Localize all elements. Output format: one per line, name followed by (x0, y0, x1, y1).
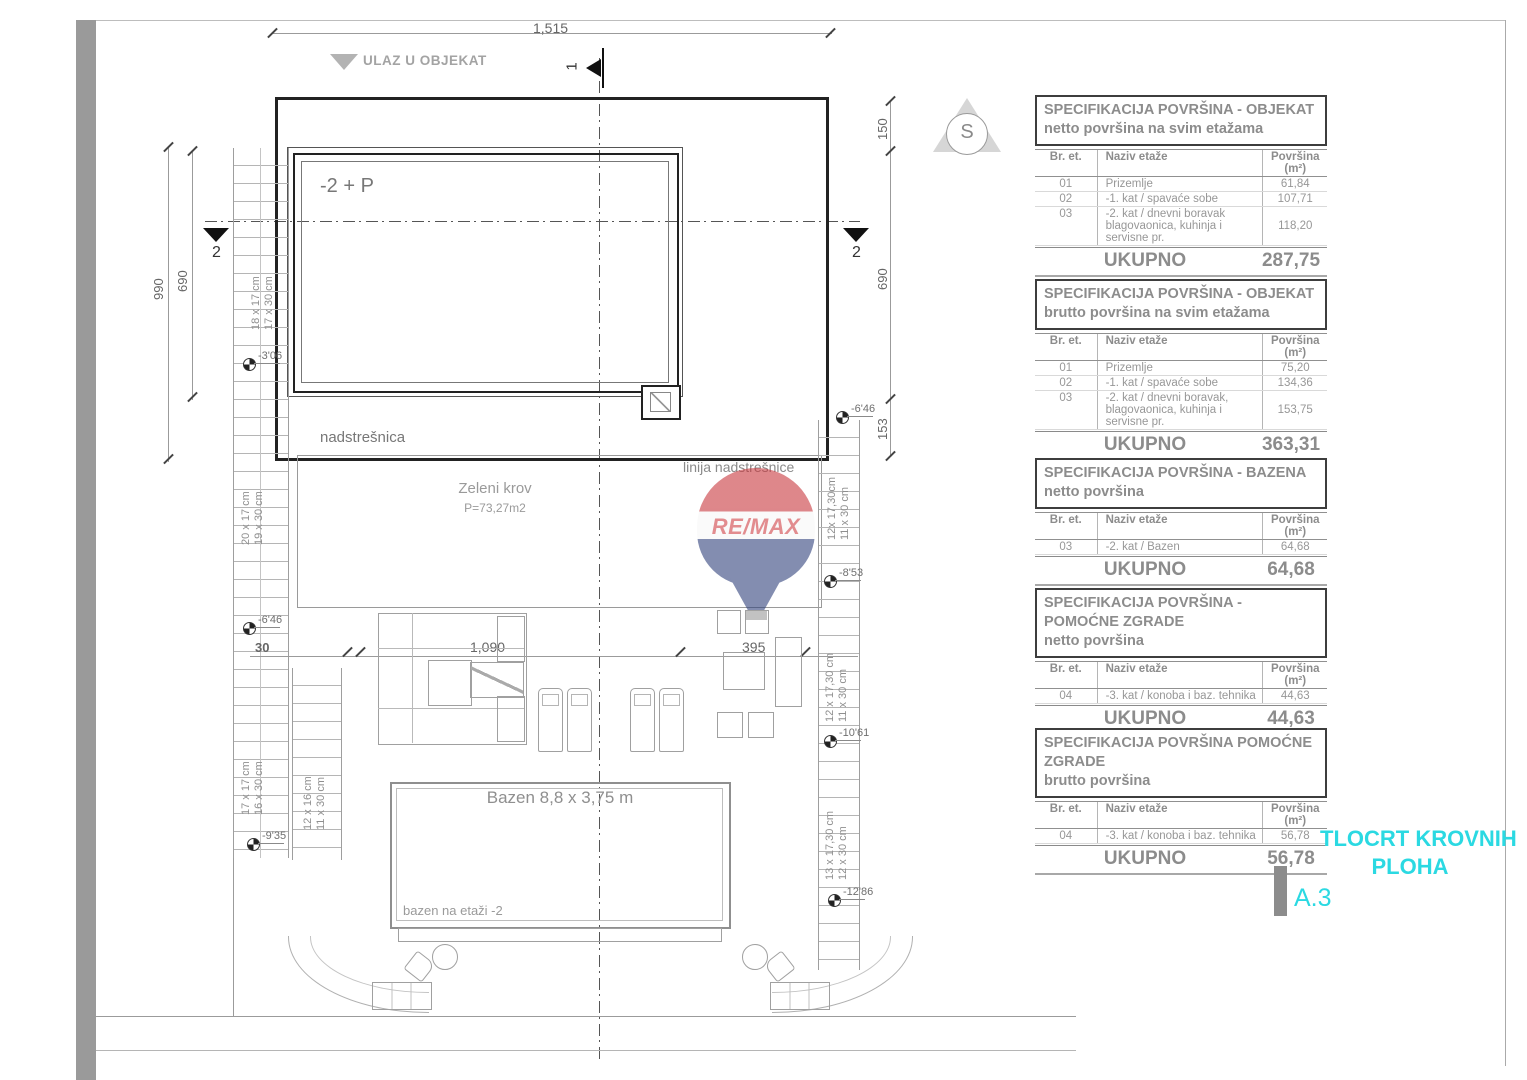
sheet-number: A.3 (1294, 884, 1332, 913)
cell-name-line2: blagovaonica, kuhinja i servisne pr. (1106, 220, 1263, 244)
balloon-tail (697, 578, 815, 610)
cell-name: -3. kat / konoba i baz. tehnika (1098, 829, 1264, 843)
table-title-box: SPECIFIKACIJA POVRŠINA - OBJEKAT brutto … (1035, 279, 1327, 330)
col-num: Br. et. (1035, 513, 1098, 539)
armchair (748, 712, 774, 738)
green-roof-area: P=73,27m2 (430, 501, 560, 515)
armchair (717, 712, 743, 738)
entrance-arrow-icon (330, 54, 358, 70)
site-line-1 (96, 1016, 1076, 1017)
dim-690-right: 690 (876, 268, 889, 290)
cell-name: -1. kat / spavaće sobe (1098, 376, 1264, 390)
stair-label-line: 17 x 30 cm (263, 276, 276, 330)
cell-area: 118,20 (1263, 207, 1327, 245)
elevation-r3: -10'61 (839, 727, 869, 739)
table-row: 04 -3. kat / konoba i baz. tehnika 56,78 (1035, 829, 1327, 844)
cell-area: 134,36 (1263, 376, 1327, 390)
remax-balloon-logo: RE/MAX (697, 468, 815, 620)
cell-num: 03 (1035, 391, 1098, 429)
green-roof-label: Zeleni krov (430, 480, 560, 497)
table-title: SPECIFIKACIJA POVRŠINA POMOĆNE ZGRADE (1044, 734, 1318, 772)
canopy-label: nadstrešnica (320, 429, 405, 446)
sheet-title-line1: TLOCRT KROVNIH (1320, 826, 1500, 852)
armchair (745, 610, 769, 634)
elevation-marker-icon (247, 838, 260, 851)
table-row: 01 Prizemlje 61,84 (1035, 177, 1327, 192)
total-label: UKUPNO (1035, 848, 1255, 870)
total-value: 56,78 (1255, 848, 1327, 870)
table-title: SPECIFIKACIJA POVRŠINA - OBJEKAT (1044, 285, 1318, 304)
dim-line-990 (168, 148, 169, 462)
spec-table-objekat-netto: SPECIFIKACIJA POVRŠINA - OBJEKAT netto p… (1035, 95, 1327, 277)
section-2-left-arrow-icon (203, 228, 229, 242)
building-label: -2 + P (320, 175, 374, 198)
section-2-right-arrow-icon (843, 228, 869, 242)
dim-990: 990 (152, 278, 165, 300)
table-header: Br. et. Naziv etaže Površina (m²) (1035, 801, 1327, 829)
cell-area: 107,71 (1263, 192, 1327, 206)
col-area: Površina (m²) (1263, 150, 1327, 176)
col-num: Br. et. (1035, 802, 1098, 828)
cell-area: 44,63 (1263, 689, 1327, 703)
table-title: SPECIFIKACIJA POVRŠINA - OBJEKAT (1044, 101, 1318, 120)
sheet-border-top (96, 20, 1506, 21)
stair-label-line: 11 x 30 cm (837, 653, 850, 722)
sun-lounger (659, 688, 684, 752)
col-num: Br. et. (1035, 150, 1098, 176)
elevation-marker-icon (243, 358, 256, 371)
lounger-headrest (634, 694, 651, 706)
cell-area: 75,20 (1263, 361, 1327, 375)
table-row: 02 -1. kat / spavaće sobe 134,36 (1035, 376, 1327, 391)
table-title-box: SPECIFIKACIJA POVRŠINA POMOĆNE ZGRADE br… (1035, 728, 1327, 798)
elevation-marker-icon (828, 894, 841, 907)
total-value: 287,75 (1255, 250, 1327, 272)
stair-label-2: 20 x 17 cm 19 x 30 cm (240, 491, 266, 545)
table-title-box: SPECIFIKACIJA POVRŠINA - POMOĆNE ZGRADE … (1035, 588, 1327, 658)
cell-name: Prizemlje (1098, 177, 1264, 191)
terrace-planter (497, 696, 525, 742)
stair-label-line: 18 x 17 cm (250, 276, 263, 330)
pool-deck-strip (398, 928, 722, 942)
stair-label-6: 12 x 17,30 cm 11 x 30 cm (824, 653, 850, 722)
col-area: Površina (m²) (1263, 802, 1327, 828)
cell-area: 61,84 (1263, 177, 1327, 191)
cell-num: 01 (1035, 361, 1098, 375)
total-label: UKUPNO (1035, 708, 1255, 730)
spec-table-pomocne-brutto: SPECIFIKACIJA POVRŠINA POMOĆNE ZGRADE br… (1035, 728, 1327, 875)
table-row: 01 Prizemlje 75,20 (1035, 361, 1327, 376)
stair-label-line: 12 x 30 cm (837, 811, 850, 880)
elevation-tail (254, 627, 280, 628)
cell-name: -2. kat / dnevni boravak blagovaonica, k… (1098, 207, 1264, 245)
section-1-arrow-icon (586, 59, 601, 77)
stair-label-line: 17 x 17 cm (240, 761, 253, 815)
table-subtitle: brutto površina (1044, 772, 1318, 791)
table-subtitle: netto površina (1044, 483, 1318, 502)
patio-table-round (742, 944, 768, 970)
page-edge-bar (76, 20, 96, 1080)
total-label: UKUPNO (1035, 559, 1255, 581)
table-subtitle: netto površina (1044, 632, 1318, 651)
elevation-tail (835, 580, 861, 581)
site-line-2 (96, 1050, 1076, 1051)
table-row: 04 -3. kat / konoba i baz. tehnika 44,63 (1035, 689, 1327, 704)
remax-wordmark: RE/MAX (705, 514, 807, 540)
elevation-tail (839, 899, 865, 900)
stair-arrow-box (470, 662, 524, 698)
cell-num: 03 (1035, 540, 1098, 554)
cell-num: 03 (1035, 207, 1098, 245)
col-name: Naziv etaže (1098, 150, 1264, 176)
cell-name-line2: blagovaonica, kuhinja i servisne pr. (1106, 404, 1263, 428)
table-row: 03 -2. kat / dnevni boravak blagovaonica… (1035, 207, 1327, 246)
col-area: Površina (m²) (1263, 513, 1327, 539)
stair-label-5: 12x 17,30cm 11 x 30 cm (826, 477, 852, 540)
total-label: UKUPNO (1035, 250, 1255, 272)
drawing-sheet: 1,515 ULAZ U OBJEKAT 1 -2 + P nadstrešni… (0, 0, 1527, 1080)
elevation-r1: -6'46 (851, 403, 875, 415)
table-subtitle: brutto površina na svim etažama (1044, 304, 1318, 323)
col-name: Naziv etaže (1098, 662, 1264, 688)
dim-153: 153 (876, 418, 889, 440)
section-2-right-label: 2 (852, 244, 861, 262)
elevation-tail (254, 363, 280, 364)
col-num: Br. et. (1035, 662, 1098, 688)
dim-30: 30 (255, 640, 269, 655)
stair-label-3: 17 x 17 cm 16 x 30 cm (240, 761, 266, 815)
cell-area: 64,68 (1263, 540, 1327, 554)
bench-left (372, 982, 432, 1010)
total-value: 363,31 (1255, 434, 1327, 456)
patio-table-round (432, 944, 458, 970)
table-title: SPECIFIKACIJA POVRŠINA - POMOĆNE ZGRADE (1044, 594, 1318, 632)
stair-label-4: 12 x 16 cm 11 x 30 cm (302, 776, 328, 830)
table-total-row: UKUPNO 287,75 (1035, 247, 1327, 277)
elevation-tail (258, 843, 284, 844)
stair-label-line: 19 x 30 cm (253, 491, 266, 545)
sun-lounger (538, 688, 563, 752)
armchair (717, 610, 741, 634)
side-sofa (775, 637, 802, 707)
lounger-headrest (663, 694, 680, 706)
stair-label-line: 20 x 17 cm (240, 491, 253, 545)
terrace-planter (497, 616, 525, 662)
dim-150: 150 (876, 118, 889, 140)
sheet-border-right (1505, 20, 1506, 1066)
elevation-r4: -12'86 (843, 886, 873, 898)
table-header: Br. et. Naziv etaže Površina (m²) (1035, 661, 1327, 689)
table-title-box: SPECIFIKACIJA POVRŠINA - OBJEKAT netto p… (1035, 95, 1327, 146)
spec-table-pomocne-netto: SPECIFIKACIJA POVRŠINA - POMOĆNE ZGRADE … (1035, 588, 1327, 735)
col-name: Naziv etaže (1098, 513, 1264, 539)
col-name: Naziv etaže (1098, 334, 1264, 360)
lounger-headrest (571, 694, 588, 706)
dim-line-terrace (250, 656, 858, 657)
cell-name: -1. kat / spavaće sobe (1098, 192, 1264, 206)
elevation-marker-icon (243, 622, 256, 635)
section-1-label: 1 (564, 62, 581, 70)
stair-label-7: 13 x 17,30 cm 12 x 30 cm (824, 811, 850, 880)
cell-num: 01 (1035, 177, 1098, 191)
lounger-headrest (542, 694, 559, 706)
cell-num: 02 (1035, 376, 1098, 390)
stair-label-line: 11 x 30 cm (315, 776, 328, 830)
table-subtitle: netto površina na svim etažama (1044, 120, 1318, 139)
table-title: SPECIFIKACIJA POVRŠINA - BAZENA (1044, 464, 1318, 483)
sofa-line (412, 613, 413, 743)
table-total-row: UKUPNO 64,68 (1035, 556, 1327, 586)
cell-name: -2. kat / Bazen (1098, 540, 1264, 554)
cell-num: 02 (1035, 192, 1098, 206)
elevation-marker-icon (824, 575, 837, 588)
bench-right (770, 982, 830, 1010)
cell-name: -2. kat / dnevni boravak, blagovaonica, … (1098, 391, 1264, 429)
elevation-l2: -6'46 (258, 614, 282, 626)
col-name: Naziv etaže (1098, 802, 1264, 828)
cell-area: 153,75 (1263, 391, 1327, 429)
elevation-tail (835, 740, 861, 741)
cell-num: 04 (1035, 829, 1098, 843)
dim-total-width: 1,515 (533, 20, 568, 36)
elevation-marker-icon (836, 411, 849, 424)
stair-label-line: 13 x 17,30 cm (824, 811, 837, 880)
elevation-r2: -8'53 (839, 567, 863, 579)
stair-label-line: 12 x 16 cm (302, 776, 315, 830)
table-header: Br. et. Naziv etaže Površina (m²) (1035, 149, 1327, 177)
stair-label-1: 18 x 17 cm 17 x 30 cm (250, 276, 276, 330)
sun-lounger (630, 688, 655, 752)
compass-letter: S (946, 121, 988, 144)
cell-num: 04 (1035, 689, 1098, 703)
pool-label: Bazen 8,8 x 3,75 m (470, 788, 650, 808)
elevation-l3: -9'35 (262, 830, 286, 842)
table-title-box: SPECIFIKACIJA POVRŠINA - BAZENA netto po… (1035, 458, 1327, 509)
table-row: 03 -2. kat / dnevni boravak, blagovaonic… (1035, 391, 1327, 430)
table-header: Br. et. Naziv etaže Površina (m²) (1035, 333, 1327, 361)
dim-line-690-left (192, 152, 193, 400)
sheet-number-bar (1274, 866, 1287, 916)
dim-line-right (890, 102, 891, 457)
stair-label-line: 12x 17,30cm (826, 477, 839, 540)
table-row: 03 -2. kat / Bazen 64,68 (1035, 540, 1327, 555)
cell-name-line1: -2. kat / dnevni boravak (1106, 208, 1263, 220)
coffee-table (428, 660, 472, 706)
elevation-marker-icon (824, 735, 837, 748)
elevation-tail (847, 416, 873, 417)
cell-name: -3. kat / konoba i baz. tehnika (1098, 689, 1264, 703)
sheet-title-line2: PLOHA (1320, 854, 1500, 880)
pool-note: bazen na etaži -2 (403, 903, 503, 918)
col-area: Površina (m²) (1263, 662, 1327, 688)
table-row: 02 -1. kat / spavaće sobe 107,71 (1035, 192, 1327, 207)
sun-lounger (567, 688, 592, 752)
stair-label-line: 16 x 30 cm (253, 761, 266, 815)
cell-area: 56,78 (1263, 829, 1327, 843)
table-total-row: UKUPNO 363,31 (1035, 431, 1327, 461)
stairs-inner-strip (292, 668, 342, 860)
entrance-label: ULAZ U OBJEKAT (363, 53, 487, 68)
section-2-left-label: 2 (212, 244, 221, 262)
section-1-bar (602, 48, 604, 88)
total-value: 44,63 (1255, 708, 1327, 730)
cell-name-line1: -2. kat / dnevni boravak, (1106, 392, 1263, 404)
dim-690-left: 690 (176, 270, 189, 292)
spec-table-bazena-netto: SPECIFIKACIJA POVRŠINA - BAZENA netto po… (1035, 458, 1327, 586)
spec-table-objekat-brutto: SPECIFIKACIJA POVRŠINA - OBJEKAT brutto … (1035, 279, 1327, 461)
col-area: Površina (m²) (1263, 334, 1327, 360)
side-table (723, 652, 765, 690)
col-num: Br. et. (1035, 334, 1098, 360)
stair-label-line: 11 x 30 cm (839, 477, 852, 540)
roof-skylight (650, 392, 671, 412)
table-header: Br. et. Naziv etaže Površina (m²) (1035, 512, 1327, 540)
total-label: UKUPNO (1035, 434, 1255, 456)
stair-label-line: 12 x 17,30 cm (824, 653, 837, 722)
elevation-l1: -3'06 (258, 350, 282, 362)
total-value: 64,68 (1255, 559, 1327, 581)
cell-name: Prizemlje (1098, 361, 1264, 375)
site-boundary-left (233, 858, 234, 1016)
